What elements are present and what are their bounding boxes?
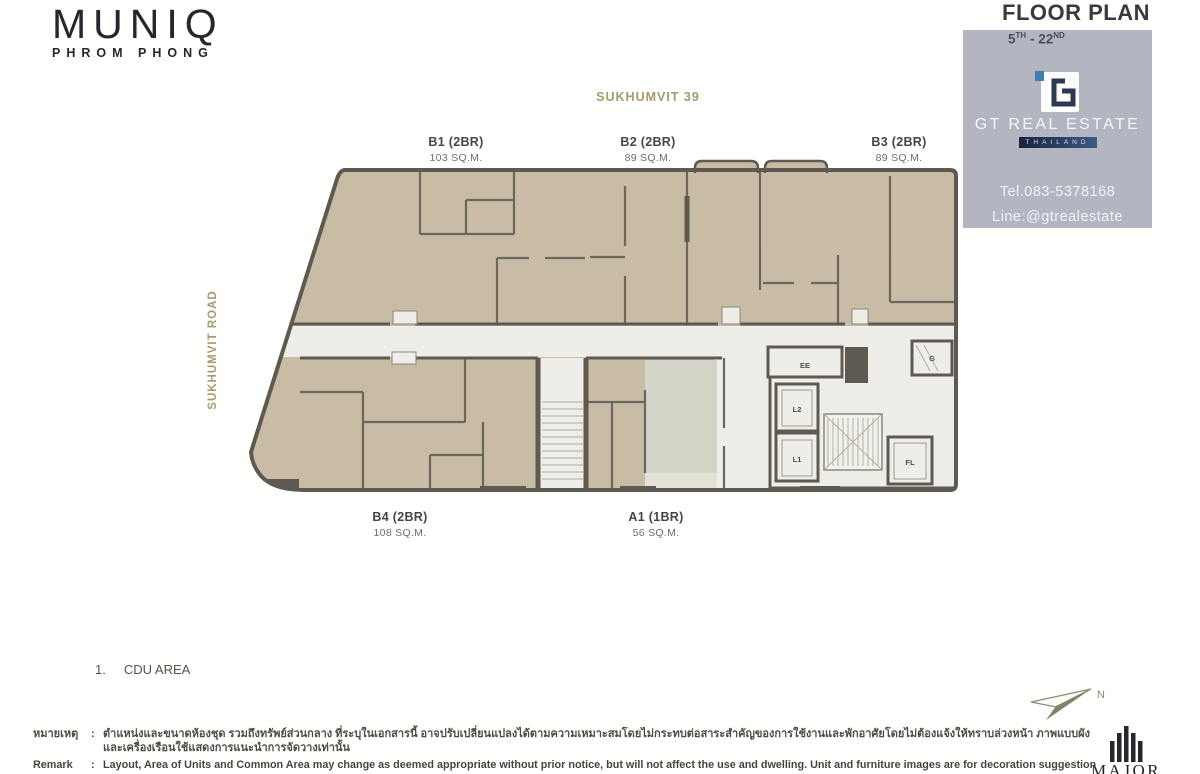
unit-label-b4: B4 (2BR) 108 SQ.M.	[320, 510, 480, 539]
remark-thai-label: หมายเหตุ	[33, 727, 91, 756]
unit-name: B4 (2BR)	[320, 510, 480, 524]
floor-to: 22	[1038, 32, 1053, 47]
remark-block: หมายเหตุ : ตำแหน่งและขนาดห้องชุด รวมถึงท…	[33, 727, 1108, 774]
unit-area: 89 SQ.M.	[568, 152, 728, 164]
unit-name: B1 (2BR)	[376, 135, 536, 149]
floor-range: 5TH - 22ND	[1008, 31, 1065, 47]
gt-real-estate-logo-icon	[1034, 66, 1082, 114]
floor-range-sep: -	[1026, 32, 1038, 47]
compass-north-label: N	[1097, 689, 1105, 701]
remark-english-text: Layout, Area of Units and Common Area ma…	[103, 758, 1108, 774]
unit-area: 89 SQ.M.	[819, 152, 979, 164]
unit-label-b3: B3 (2BR) 89 SQ.M.	[819, 135, 979, 164]
major-building-icon	[1110, 726, 1143, 762]
remark-row-english: Remark : Layout, Area of Units and Commo…	[33, 758, 1108, 774]
watermark-country-badge: THAILAND	[1019, 137, 1097, 148]
unit-label-a1: A1 (1BR) 56 SQ.M.	[576, 510, 736, 539]
core-label-l2: L2	[793, 405, 802, 414]
floor-plan-page: EE G L2 L1 FL N MAJOR MUNIQ PHROM PH	[0, 0, 1200, 774]
brand-name: MUNIQ	[52, 4, 224, 45]
core-label-l1: L1	[793, 455, 802, 464]
core-label-ee: EE	[800, 361, 810, 370]
brand-logo: MUNIQ PHROM PHONG	[52, 4, 224, 60]
note-number: 1.	[95, 662, 106, 677]
unit-name: B3 (2BR)	[819, 135, 979, 149]
street-label-sukhumvit-39: SUKHUMVIT 39	[548, 90, 748, 104]
unit-label-b1: B1 (2BR) 103 SQ.M.	[376, 135, 536, 164]
remark-separator: :	[91, 758, 103, 774]
note-text: CDU AREA	[124, 662, 190, 677]
unit-name: A1 (1BR)	[576, 510, 736, 524]
unit-area: 108 SQ.M.	[320, 527, 480, 539]
remark-english-label: Remark	[33, 758, 91, 774]
brand-subtitle: PHROM PHONG	[52, 46, 224, 60]
core-label-g: G	[929, 354, 935, 363]
unit-area: 56 SQ.M.	[576, 527, 736, 539]
watermark-company: GT REAL ESTATE	[975, 116, 1140, 134]
floor-from-suffix: TH	[1016, 31, 1027, 40]
remark-separator: :	[91, 727, 103, 756]
watermark-phone: Tel.083-5378168	[1000, 184, 1116, 200]
street-label-sukhumvit-road: SUKHUMVIT ROAD	[207, 270, 223, 430]
unit-label-b2: B2 (2BR) 89 SQ.M.	[568, 135, 728, 164]
legend-note: 1. CDU AREA	[95, 662, 190, 677]
watermark-overlay: GT REAL ESTATE THAILAND Tel.083-5378168 …	[963, 30, 1152, 228]
watermark-line-id: Line:@gtrealestate	[992, 209, 1123, 225]
remark-thai-text: ตำแหน่งและขนาดห้องชุด รวมถึงทรัพย์ส่วนกล…	[103, 727, 1108, 756]
unit-name: B2 (2BR)	[568, 135, 728, 149]
remark-row-thai: หมายเหตุ : ตำแหน่งและขนาดห้องชุด รวมถึงท…	[33, 727, 1108, 756]
page-title: FLOOR PLAN	[1002, 0, 1150, 26]
compass-icon: N	[1031, 689, 1105, 720]
core-label-fl: FL	[905, 458, 915, 467]
unit-area: 103 SQ.M.	[376, 152, 536, 164]
floor-from: 5	[1008, 32, 1016, 47]
floor-to-suffix: ND	[1053, 31, 1065, 40]
